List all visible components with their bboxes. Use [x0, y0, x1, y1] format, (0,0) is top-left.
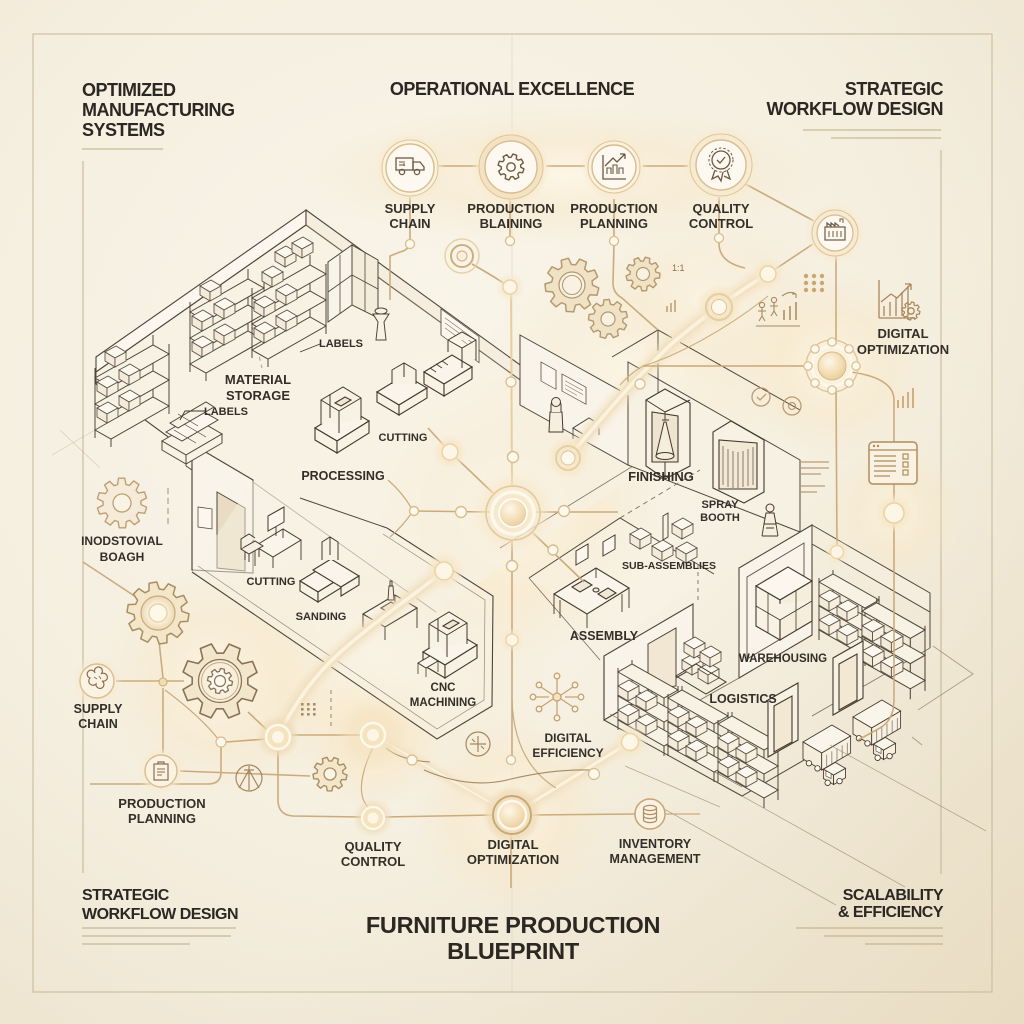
svg-text:SYSTEMS: SYSTEMS	[82, 120, 165, 140]
svg-text:DIGITAL: DIGITAL	[487, 837, 538, 852]
svg-text:OPERATIONAL EXCELLENCE: OPERATIONAL EXCELLENCE	[390, 79, 635, 99]
svg-text:LOGISTICS: LOGISTICS	[709, 692, 776, 706]
svg-text:BOAGH: BOAGH	[100, 550, 145, 564]
svg-text:DIGITAL: DIGITAL	[877, 326, 928, 341]
svg-text:BOOTH: BOOTH	[700, 512, 740, 524]
svg-text:EFFICIENCY: EFFICIENCY	[532, 746, 603, 760]
svg-text:FURNITURE PRODUCTION: FURNITURE PRODUCTION	[366, 912, 660, 938]
svg-text:PRODUCTION: PRODUCTION	[570, 201, 657, 216]
svg-text:MANUFACTURING: MANUFACTURING	[82, 100, 235, 120]
svg-text:OPTIMIZED: OPTIMIZED	[82, 80, 176, 100]
svg-text:PROCESSING: PROCESSING	[301, 469, 384, 483]
svg-text:CNC: CNC	[431, 682, 456, 694]
svg-text:PLANNING: PLANNING	[580, 216, 648, 231]
svg-text:MATERIAL: MATERIAL	[225, 372, 291, 387]
svg-text:SANDING: SANDING	[296, 611, 347, 623]
svg-text:QUALITY: QUALITY	[692, 201, 749, 216]
svg-text:WORKFLOW DESIGN: WORKFLOW DESIGN	[82, 906, 238, 923]
svg-text:FINISHING: FINISHING	[628, 469, 694, 484]
svg-text:CONTROL: CONTROL	[689, 216, 753, 231]
svg-text:OPTIMIZATION: OPTIMIZATION	[857, 342, 949, 357]
svg-text:STRATEGIC: STRATEGIC	[845, 79, 944, 99]
svg-text:PLANNING: PLANNING	[128, 811, 196, 826]
svg-text:SUB-ASSEMBLIES: SUB-ASSEMBLIES	[622, 560, 716, 572]
svg-text:SUPPLY: SUPPLY	[385, 201, 436, 216]
svg-text:MACHINING: MACHINING	[410, 697, 476, 709]
svg-text:SUPPLY: SUPPLY	[74, 702, 124, 716]
svg-text:CHAIN: CHAIN	[78, 717, 118, 731]
svg-text:ASSEMBLY: ASSEMBLY	[570, 629, 639, 643]
svg-text:CHAIN: CHAIN	[389, 216, 430, 231]
svg-text:QUALITY: QUALITY	[344, 839, 401, 854]
svg-text:WAREHOUSING: WAREHOUSING	[739, 653, 827, 665]
svg-text:BLAINING: BLAINING	[480, 216, 543, 231]
svg-text:LABELS: LABELS	[319, 338, 363, 350]
svg-text:MANAGEMENT: MANAGEMENT	[610, 852, 701, 866]
svg-text:LABELS: LABELS	[204, 406, 248, 418]
svg-text:WORKFLOW DESIGN: WORKFLOW DESIGN	[767, 99, 943, 119]
svg-text:1:1: 1:1	[672, 263, 685, 273]
svg-text:BLUEPRINT: BLUEPRINT	[447, 938, 580, 964]
svg-text:CONTROL: CONTROL	[341, 854, 405, 869]
svg-text:OPTIMIZATION: OPTIMIZATION	[467, 852, 559, 867]
svg-text:& EFFICIENCY: & EFFICIENCY	[838, 904, 944, 921]
svg-text:SPRAY: SPRAY	[702, 499, 740, 511]
svg-text:DIGITAL: DIGITAL	[544, 731, 591, 745]
svg-text:PRODUCTION: PRODUCTION	[467, 201, 554, 216]
svg-text:CUTTING: CUTTING	[379, 432, 428, 444]
svg-text:INVENTORY: INVENTORY	[619, 837, 692, 851]
svg-text:CUTTING: CUTTING	[247, 576, 296, 588]
svg-text:STORAGE: STORAGE	[226, 388, 290, 403]
svg-text:PRODUCTION: PRODUCTION	[118, 796, 205, 811]
svg-text:INODSTOVIAL: INODSTOVIAL	[81, 534, 163, 548]
svg-text:STRATEGIC: STRATEGIC	[82, 887, 170, 904]
svg-text:SCALABILITY: SCALABILITY	[843, 887, 944, 904]
